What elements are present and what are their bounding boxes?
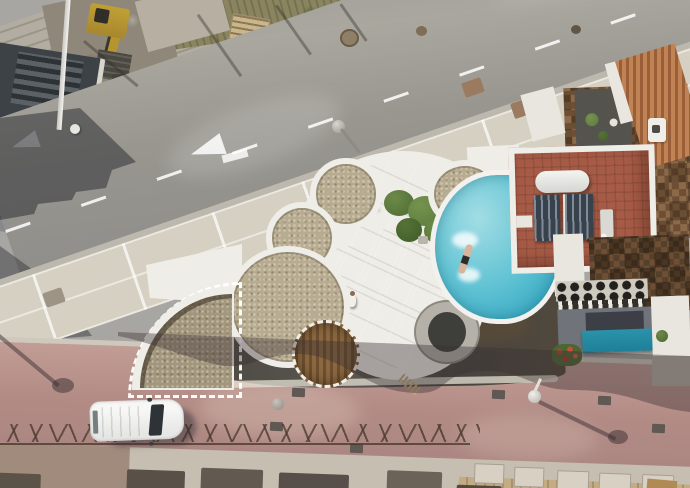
patio-plant — [585, 113, 598, 126]
manhole-cover — [416, 26, 427, 36]
chimney-flue — [652, 125, 660, 133]
rebar-zigzag — [0, 424, 480, 442]
drain-cover — [492, 390, 505, 399]
aerial-photo — [0, 0, 690, 488]
wall-plant — [656, 330, 668, 342]
concrete-pit — [126, 469, 185, 488]
person-head — [350, 291, 355, 296]
concrete-pit — [386, 470, 442, 488]
manhole-cover — [340, 29, 359, 47]
round-patio-void — [428, 312, 466, 352]
lamp-shadow-head — [52, 378, 74, 393]
van-windshield — [149, 404, 165, 436]
wooden-deck-circle — [292, 320, 360, 388]
patio-plant — [598, 131, 608, 141]
excavator-cab — [94, 8, 110, 24]
street-light-globe — [70, 124, 80, 134]
white-van — [89, 396, 195, 450]
concrete-pier — [557, 470, 590, 488]
terrace-white-tab — [516, 215, 532, 227]
concrete-pit — [200, 468, 263, 488]
fan-roof-gravel — [140, 294, 232, 388]
wood-plank — [646, 479, 677, 488]
drain-cover — [598, 396, 611, 405]
concrete-pier — [474, 463, 505, 484]
lamp-shadow-head — [608, 430, 628, 444]
blue-awning — [582, 328, 653, 352]
concrete-pit — [278, 472, 349, 488]
van-rear-window — [93, 411, 99, 434]
rebar-line — [0, 443, 470, 445]
concrete-ledge-right — [652, 356, 690, 386]
van-roof-ridges — [101, 406, 146, 438]
street-lamp-globe — [272, 398, 284, 410]
concrete-pier — [599, 473, 632, 488]
concrete-pier — [514, 467, 545, 488]
road-wear-patch — [485, 0, 690, 16]
flower-planter — [552, 344, 582, 366]
chimney — [648, 118, 666, 142]
drain-cover — [652, 424, 665, 433]
concrete-pit — [0, 473, 41, 488]
patio-table — [609, 118, 617, 126]
drain-cover — [350, 444, 363, 453]
plant-pot — [418, 236, 428, 244]
drain-cover — [292, 388, 305, 397]
manhole-cover — [571, 25, 581, 34]
sand-pit — [456, 485, 502, 488]
solar-water-tank — [535, 170, 590, 193]
